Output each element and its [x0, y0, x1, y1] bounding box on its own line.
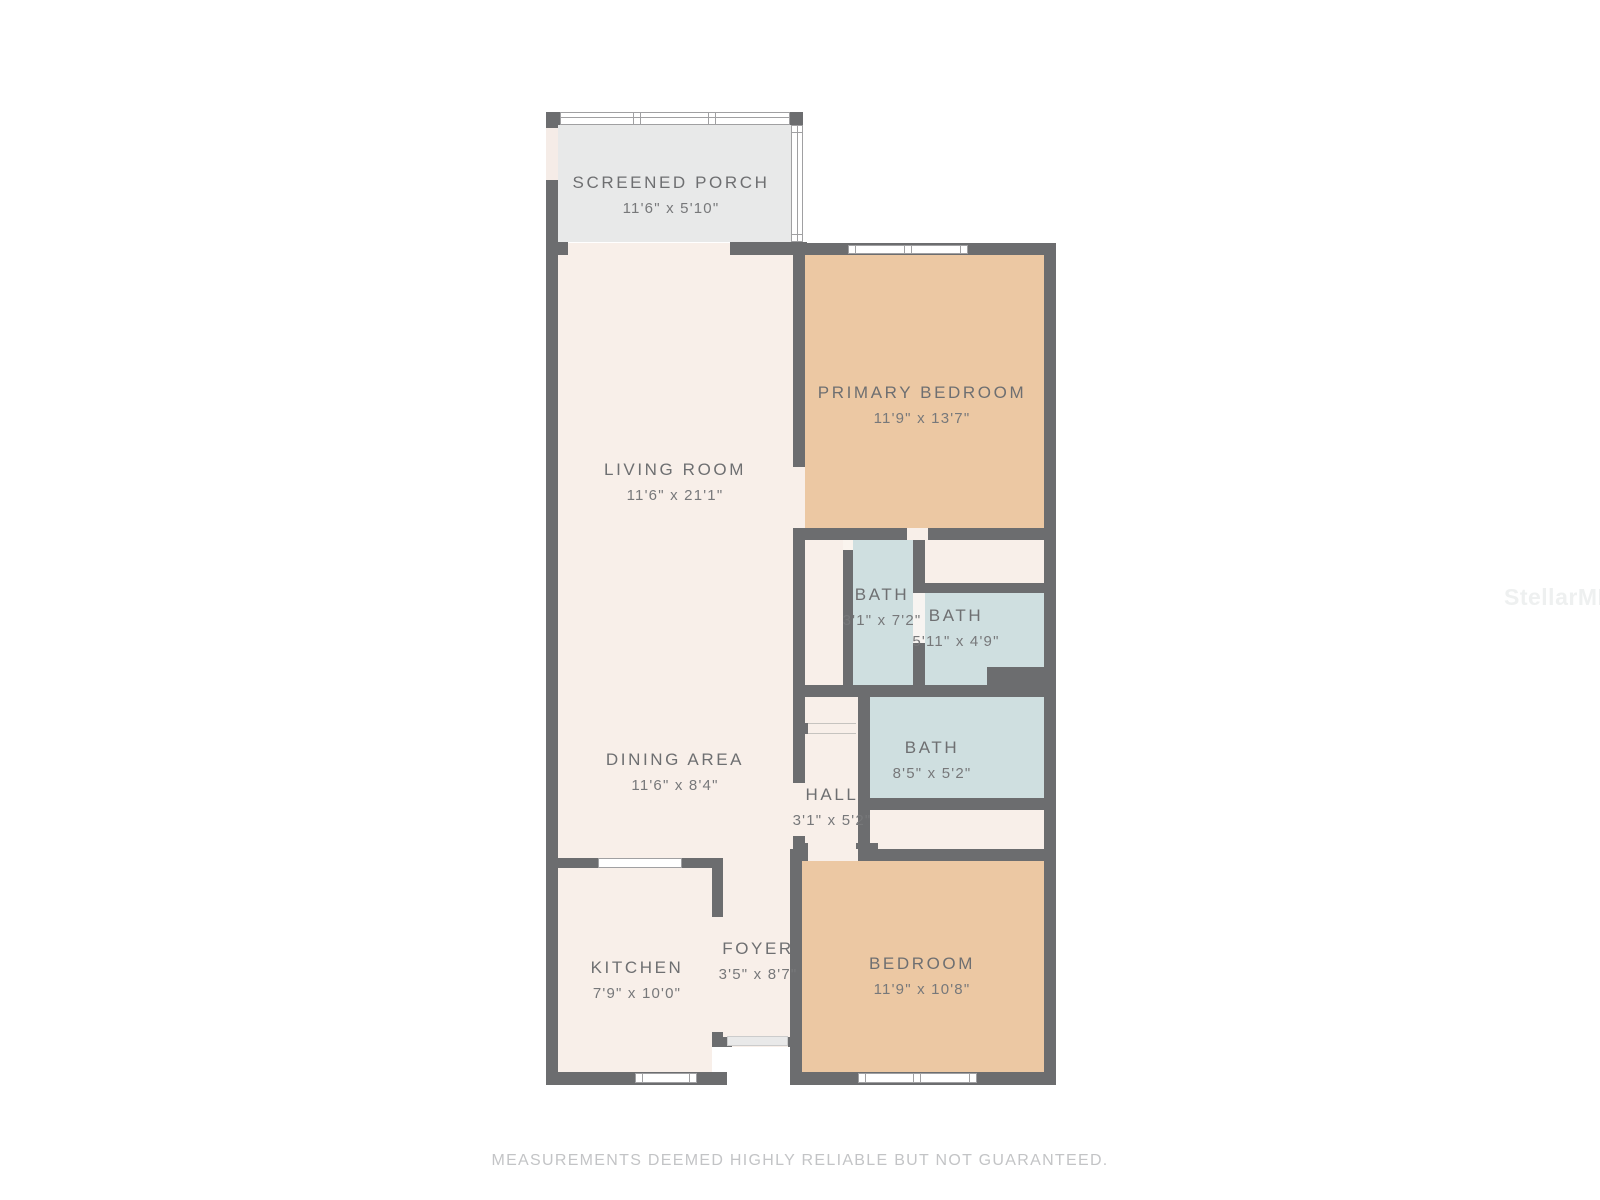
- window-mullion: [904, 246, 905, 253]
- window-mullion: [633, 113, 634, 124]
- wall-bath3-bottom: [858, 798, 1056, 810]
- window-symbol-primary-bedroom: [848, 245, 968, 254]
- room-fill-closet-d: [870, 810, 1044, 849]
- window-glass-line: [561, 117, 789, 118]
- wall-closet-b-bottom: [925, 583, 1044, 593]
- window-frame-tick: [960, 246, 961, 253]
- wall-primary-bottom-right: [928, 528, 1056, 540]
- room-label-bedroom: BEDROOM 11'9" x 10'8": [869, 954, 975, 998]
- room-label-primary-bedroom: PRIMARY BEDROOM 11'9" x 13'7": [818, 383, 1026, 427]
- wall-hall-left: [793, 697, 805, 783]
- window-mullion: [640, 113, 641, 124]
- wall-living-primary-divider: [793, 243, 805, 467]
- wall-bedroom-door-jamb-right: [856, 843, 878, 849]
- wall-mid-horizontal: [793, 685, 1044, 697]
- window-symbol-porch-screen-right: [791, 125, 803, 242]
- room-label-screened-porch: SCREENED PORCH 11'6" x 5'10": [573, 173, 770, 217]
- room-fill-closet-a: [805, 540, 843, 690]
- wall-bath3-left: [858, 697, 870, 861]
- wall-bath2-notch: [987, 667, 1044, 685]
- window-mullion: [792, 132, 802, 133]
- window-glass-line: [797, 126, 798, 241]
- window-frame-tick: [689, 1074, 690, 1082]
- wall-right-exterior: [1044, 243, 1056, 1085]
- room-fill-hall: [805, 697, 858, 861]
- wall-porch-bottom-left: [546, 242, 568, 255]
- window-frame-tick: [642, 1074, 643, 1082]
- floorplan-canvas: SCREENED PORCH 11'6" x 5'10" LIVING ROOM…: [0, 0, 1600, 1200]
- entry-door-threshold: [727, 1036, 788, 1046]
- room-label-kitchen: KITCHEN 7'9" x 10'0": [591, 958, 684, 1002]
- measurements-disclaimer: MEASUREMENTS DEEMED HIGHLY RELIABLE BUT …: [0, 1152, 1600, 1170]
- window-frame-tick: [969, 1074, 970, 1082]
- room-label-dining-area: DINING AREA 11'6" x 8'4": [606, 750, 744, 794]
- window-symbol-kitchen-passthrough: [598, 858, 682, 868]
- room-label-bath-1: BATH 3'1" x 7'2": [843, 585, 922, 629]
- window-symbol-bedroom-bottom: [858, 1073, 977, 1083]
- wall-porch-corner-tr: [790, 112, 803, 125]
- porch-left-opening: [546, 128, 558, 180]
- window-mullion: [913, 1074, 914, 1082]
- room-label-bath-3: BATH 8'5" x 5'2": [893, 738, 972, 782]
- wall-kitchen-foyer-divider: [712, 858, 723, 917]
- window-frame-tick: [865, 1074, 866, 1082]
- window-symbol-porch-screen-top: [560, 112, 790, 125]
- room-label-hall: HALL 3'1" x 5'2": [793, 785, 872, 829]
- window-mullion: [715, 113, 716, 124]
- room-label-foyer: FOYER 3'5" x 8'7": [719, 939, 798, 983]
- wall-foyer-right-foot: [788, 1037, 802, 1047]
- window-frame-tick: [855, 246, 856, 253]
- room-fill-closet-b: [925, 540, 1044, 583]
- window-mullion: [708, 113, 709, 124]
- closet-a-door-notch: [843, 540, 853, 550]
- wall-primary-bottom-left: [793, 528, 907, 540]
- wall-bedroom-top: [858, 849, 1056, 861]
- window-symbol-kitchen-bottom: [635, 1073, 697, 1083]
- hall-door-threshold: [808, 723, 856, 734]
- stellar-mls-watermark: StellarMLS: [1504, 584, 1600, 611]
- window-mullion: [920, 1074, 921, 1082]
- wall-porch-corner-tl: [546, 112, 560, 125]
- wall-hall-door-jamb: [795, 723, 808, 734]
- wall-bathzone-left: [793, 540, 805, 697]
- room-label-living-room: LIVING ROOM 11'6" x 21'1": [604, 460, 746, 504]
- wall-left-exterior: [546, 112, 558, 1085]
- door-opening-primary-closet: [907, 528, 928, 540]
- room-label-bath-2: BATH 5'11" x 4'9": [912, 606, 999, 650]
- window-mullion: [792, 234, 802, 235]
- window-mullion: [911, 246, 912, 253]
